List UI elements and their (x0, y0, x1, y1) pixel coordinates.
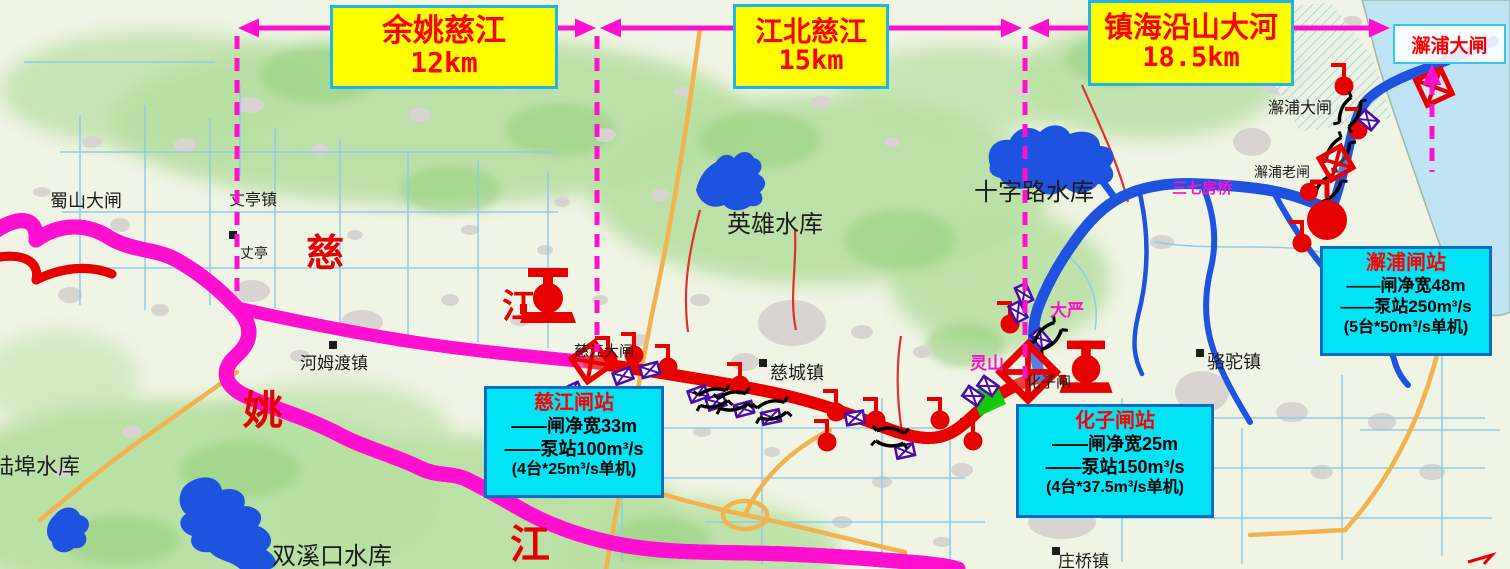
urban-patch (851, 325, 873, 339)
segment-name: 余姚慈江 (382, 15, 506, 48)
urban-patch (690, 294, 710, 306)
map-canvas: 蜀山大闸 丈亭镇 丈亭 河姆渡镇 慈城镇 骆驼镇 庄桥镇 陆埠水库 双溪口水库 … (0, 0, 1510, 569)
station-box-cijiang: 慈江闸站 ——闸净宽33m ——泵站100m³/s (4台*25m³/s单机) (484, 386, 664, 498)
segment-length: 12km (410, 48, 477, 79)
segment-box-yuyao-cijiang: 余姚慈江 12km (330, 5, 558, 89)
urban-patch (592, 295, 608, 305)
urban-patch (461, 225, 479, 235)
station-title: 慈江闸站 (489, 391, 659, 415)
urban-patch (651, 189, 669, 201)
label-shizilu-reservoir: 十字路水库 (974, 178, 1094, 206)
station-line: ——闸净宽48m (1325, 275, 1487, 296)
urban-patch (174, 138, 196, 152)
station-line: ——闸净宽25m (1021, 433, 1209, 456)
label-yingxiong-reservoir: 英雄水库 (727, 210, 823, 238)
station-title: 澥浦闸站 (1325, 251, 1487, 275)
label-luotuo-town: 骆驼镇 (1207, 352, 1261, 373)
label-zhangting: 丈亭 (240, 245, 268, 262)
segment-length: 15km (778, 46, 843, 76)
label-lubu-reservoir: 陆埠水库 (0, 455, 80, 480)
label-zhuangqiao-town: 庄桥镇 (1058, 552, 1109, 569)
label-huazi-gate: 化子闸 (1026, 373, 1071, 391)
label-yao-char: 姚 (242, 387, 283, 434)
urban-patch (82, 136, 102, 148)
segment-box-zhenhai-yanshan: 镇海沿山大河 18.5km (1088, 0, 1294, 86)
xiepu-gate-callout-text: 澥浦大闸 (1411, 31, 1487, 58)
label-xiepu-gate-map: 澥浦大闸 (1268, 98, 1332, 117)
urban-patch (311, 144, 329, 156)
urban-patch (1311, 465, 1333, 479)
urban-patch (951, 463, 973, 477)
urban-patch (441, 294, 459, 306)
station-line: ——闸净宽33m (489, 415, 659, 438)
urban-patch (1013, 87, 1031, 97)
urban-patch (812, 96, 832, 108)
bridge-icon (845, 411, 865, 426)
segment-box-jiangbei-cijiang: 江北慈江 15km (733, 4, 889, 89)
urban-patch (913, 346, 931, 358)
urban-patch (58, 287, 82, 303)
station-title: 化子闸站 (1021, 409, 1209, 433)
urban-patch (1419, 464, 1445, 480)
segment-name: 江北慈江 (755, 17, 867, 46)
urban-patch (1150, 235, 1174, 249)
urban-patch (1233, 128, 1271, 156)
station-box-xiepu: 澥浦闸站 ——闸净宽48m ——泵站250m³/s (5台*50m³/s单机) (1320, 246, 1492, 356)
label-ci-char: 慈 (306, 230, 344, 275)
label-jiang-char-bottom: 江 (510, 521, 550, 568)
station-line: ——泵站150m³/s (1021, 456, 1209, 479)
urban-patch (758, 300, 826, 346)
urban-patch (933, 537, 951, 547)
station-line: ——泵站250m³/s (1325, 296, 1487, 317)
station-box-huazi: 化子闸站 ——闸净宽25m ——泵站150m³/s (4台*37.5m³/s单机… (1016, 404, 1214, 518)
label-shushan-gate: 蜀山大闸 (50, 191, 122, 212)
urban-patch (1368, 413, 1396, 431)
urban-patch (673, 87, 691, 97)
urban-patch (33, 187, 51, 197)
urban-patch (764, 447, 780, 457)
urban-patch (884, 137, 900, 147)
urban-patch (347, 230, 363, 240)
station-line: ——泵站100m³/s (489, 438, 659, 461)
segment-name: 镇海沿山大河 (1104, 13, 1278, 43)
xiepu-gate-callout: 澥浦大闸 (1393, 24, 1506, 64)
label-cijiang-gate: 慈江大闸 (574, 342, 634, 360)
urban-patch (1276, 402, 1308, 422)
label-dayan: 大严 (1050, 300, 1084, 320)
segment-length: 18.5km (1142, 43, 1240, 73)
urban-patch (122, 426, 142, 438)
label-hemudu-town: 河姆渡镇 (300, 354, 368, 374)
urban-patch (110, 218, 130, 232)
label-sanqifang-bridge: 三七房桥 (1172, 179, 1233, 197)
urban-patch (537, 245, 553, 255)
urban-patch (408, 108, 432, 122)
label-xiepu-old-gate: 澥浦老闸 (1254, 165, 1310, 181)
urban-patch (151, 304, 169, 316)
station-line: (4台*37.5m³/s单机) (1021, 478, 1209, 498)
label-shuangxikou-reservoir: 双溪口水库 (272, 542, 392, 569)
label-jiang-char-mid: 江 (502, 287, 536, 327)
station-line: (4台*25m³/s单机) (489, 460, 659, 480)
label-lingshan: 灵山 (970, 354, 1004, 373)
station-line: (5台*50m³/s单机) (1325, 318, 1487, 338)
urban-patch (554, 197, 570, 207)
label-cicheng-town: 慈城镇 (770, 363, 824, 384)
